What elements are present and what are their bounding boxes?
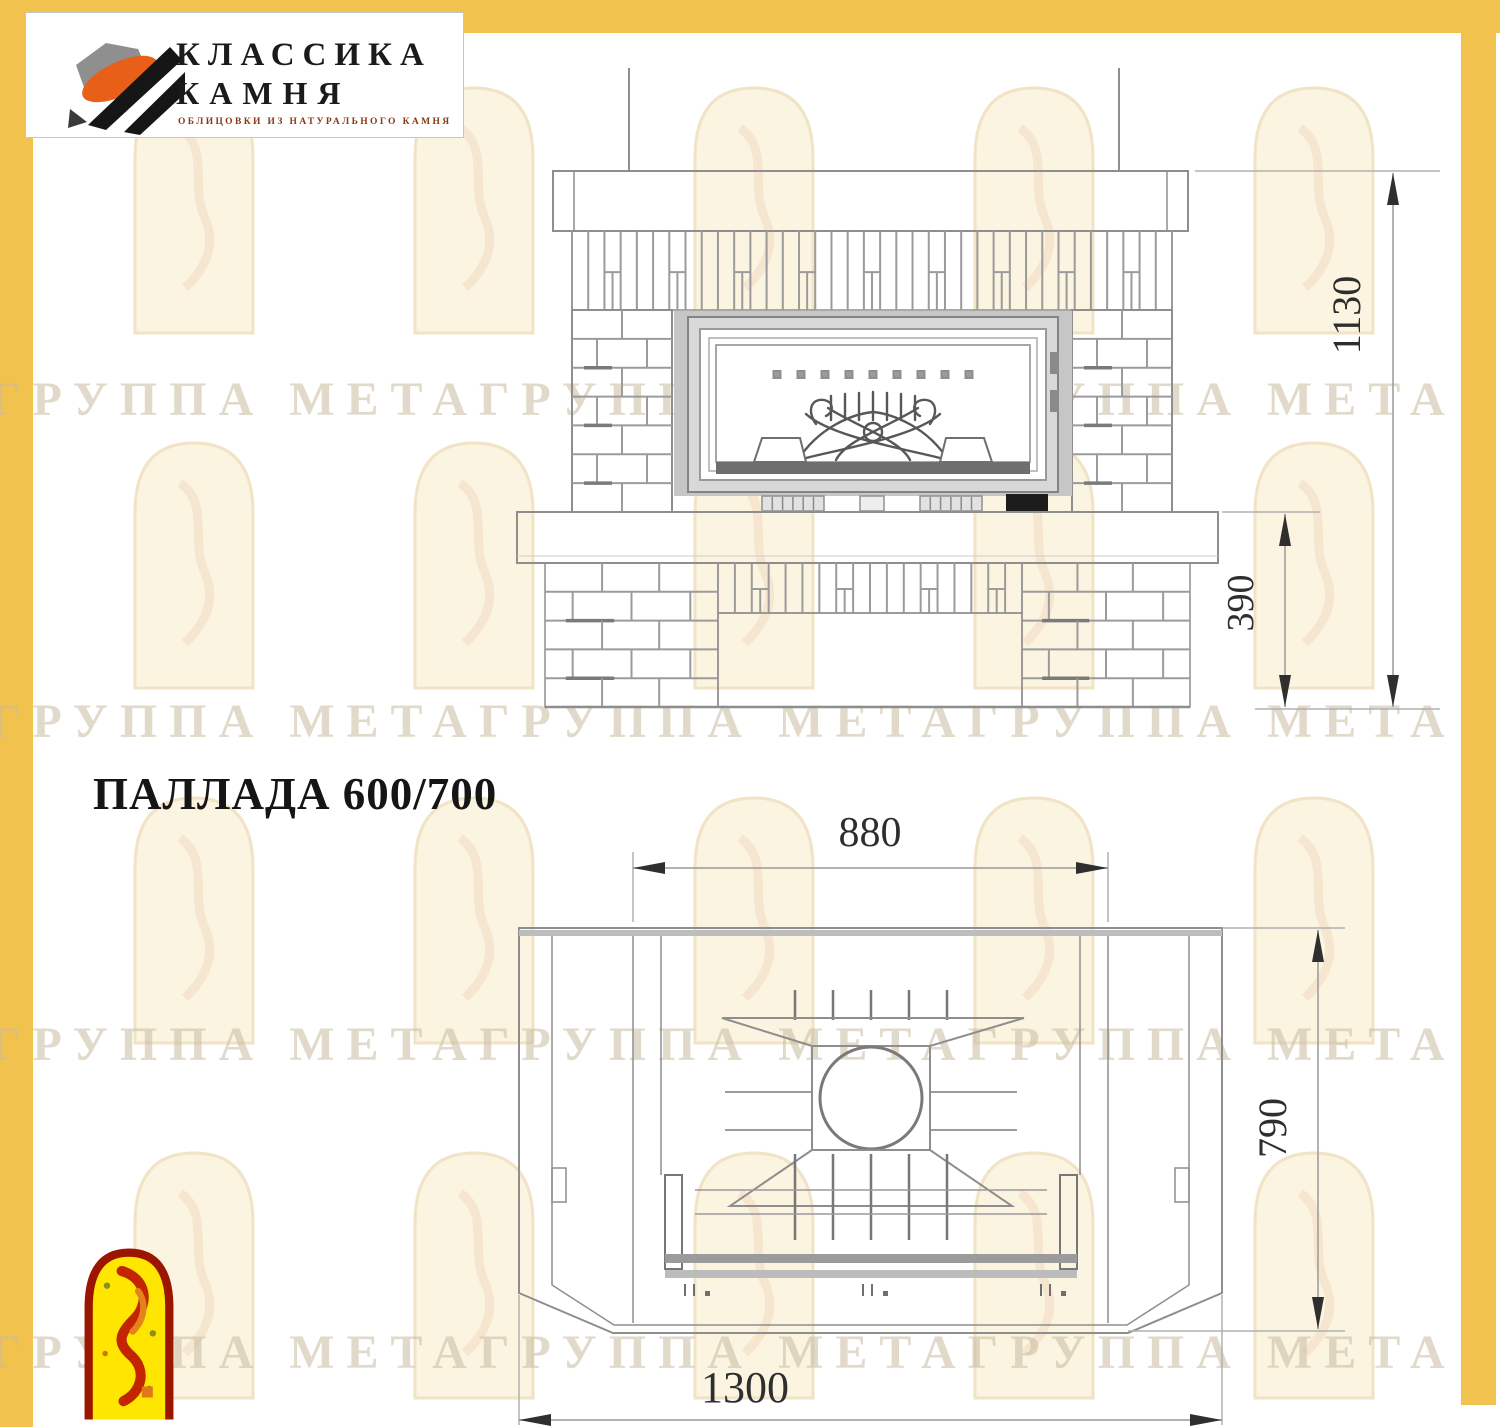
hearth-bench-slab <box>517 512 1218 563</box>
pier-left-bricks <box>545 563 718 707</box>
dim-label-790: 790 <box>1250 1098 1295 1158</box>
firebox-base-strip <box>716 462 1030 474</box>
plan-grate-prongs-bottom <box>795 1154 947 1240</box>
model-title: ПАЛЛАДА 600/700 <box>93 768 497 820</box>
dim-label-1130: 1130 <box>1324 276 1369 355</box>
dim-label-390: 390 <box>1220 575 1262 632</box>
dim-label-880: 880 <box>839 810 902 856</box>
fireplace-technical-drawing: ГРУППА МЕТАГРУППА МЕТАГРУППА МЕТАГРУППА … <box>0 0 1500 1427</box>
brand-name-line1: КЛАССИКА <box>176 37 432 74</box>
door-hinge-top <box>1050 352 1059 374</box>
glass-vent-dots <box>774 371 973 378</box>
door-handle <box>1006 494 1048 511</box>
watermark-text: ГРУППА МЕТАГРУППА МЕТАГРУППА МЕТА <box>0 1018 1457 1071</box>
plan-view <box>519 928 1222 1333</box>
corner-arch-logo <box>74 1236 184 1427</box>
plan-grate-prongs-top <box>795 990 947 1020</box>
vent-center <box>860 496 884 511</box>
dim-label-1300: 1300 <box>701 1363 789 1412</box>
brand-logo-box: КЛАССИКА КАМНЯ ОБЛИЦОВКИ ИЗ НАТУРАЛЬНОГО… <box>25 12 464 138</box>
plan-front-band-2 <box>665 1270 1077 1278</box>
plan-side-bars <box>725 1092 1017 1130</box>
grate-foot-right <box>940 438 992 462</box>
logo-black-slash-3 <box>68 109 87 128</box>
door-hinge-bottom <box>1050 390 1059 412</box>
brand-name-line2: КАМНЯ <box>176 75 351 112</box>
plan-back-wall <box>519 930 1222 936</box>
brand-logo-icon <box>40 17 185 135</box>
plan-front-band-1 <box>665 1254 1077 1263</box>
grate-foot-left <box>754 438 806 462</box>
pedestal-pier-left <box>545 563 718 707</box>
brand-tagline: ОБЛИЦОВКИ ИЗ НАТУРАЛЬНОГО КАМНЯ <box>178 117 452 127</box>
plan-wall-tab-right <box>1175 1168 1189 1202</box>
plan-wall-tab-left <box>552 1168 566 1202</box>
watermark-text: ГРУППА МЕТАГРУППА МЕТАГРУППА МЕТА <box>0 695 1457 748</box>
